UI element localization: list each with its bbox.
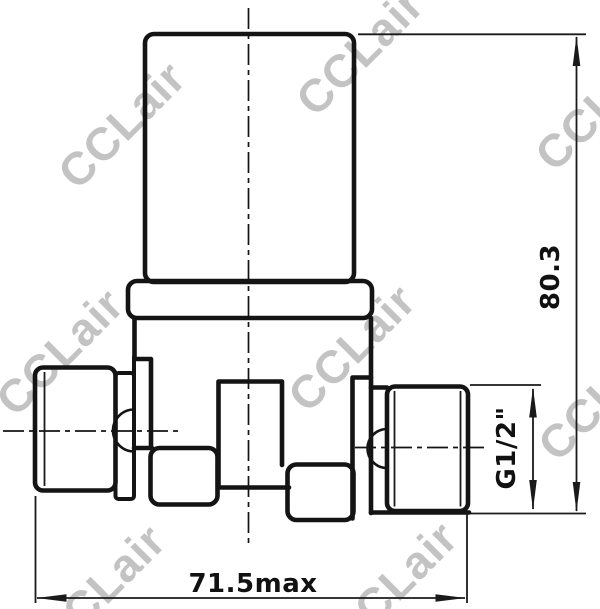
arrow-down-thread	[529, 480, 537, 510]
flange-collar	[128, 281, 372, 318]
arrow-down-height	[573, 482, 581, 512]
bottom-left-block	[151, 448, 218, 505]
watermark-text: CCLair	[320, 511, 468, 609]
centerlines	[3, 8, 489, 545]
technical-drawing-page: CCLair CCLair CCLair CCLair CCLair CCLai…	[0, 0, 600, 609]
left-port-washer	[116, 373, 135, 499]
right-port-nut	[387, 387, 468, 512]
watermark-text: CCLair	[48, 51, 196, 199]
center-stem	[219, 382, 290, 488]
watermark-text: CCLair	[525, 33, 600, 181]
watermark-text: CCLair	[28, 514, 176, 609]
watermark-text: CCLair	[286, 0, 434, 126]
arrow-right-width	[436, 594, 466, 602]
width-dimension-label: 71.5max	[188, 569, 317, 599]
body-left-edge	[135, 318, 152, 446]
bottom-right-block	[288, 465, 354, 521]
height-dimension-label: 80.3	[536, 244, 566, 310]
valve-technical-drawing: CCLair CCLair CCLair CCLair CCLair CCLai…	[0, 0, 600, 609]
arrow-up-thread	[529, 388, 537, 418]
watermark-layer: CCLair CCLair CCLair CCLair CCLair CCLai…	[0, 0, 600, 609]
arrow-up-height	[573, 36, 581, 66]
watermark-text: CCLair	[528, 323, 600, 471]
thread-dimension-label: G1/2"	[492, 406, 522, 489]
